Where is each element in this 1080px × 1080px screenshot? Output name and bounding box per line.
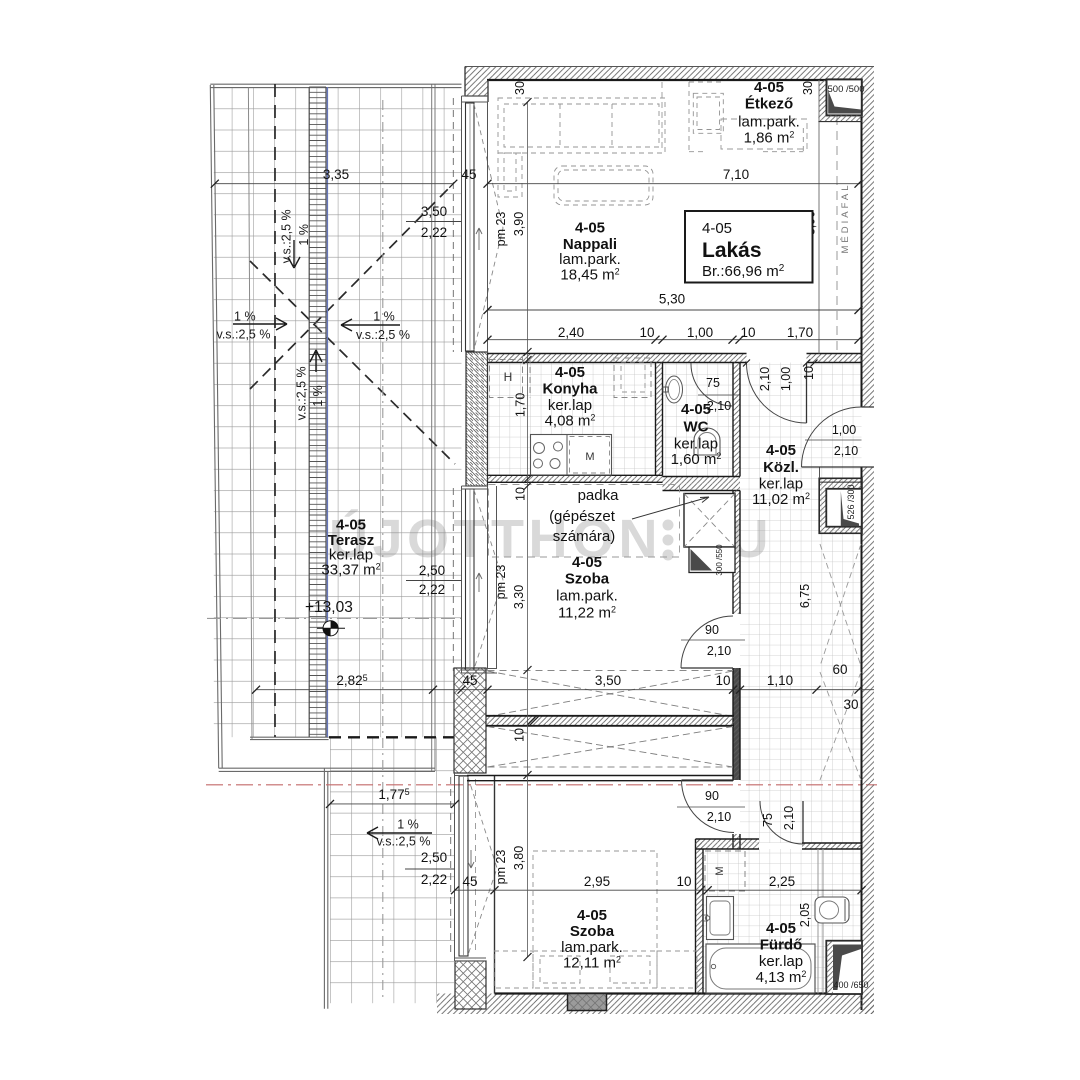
svg-text:1,70: 1,70: [787, 325, 813, 340]
svg-text:+13,03: +13,03: [305, 599, 353, 616]
svg-text:ker.lap: ker.lap: [674, 436, 718, 453]
svg-text:90: 90: [705, 623, 719, 637]
svg-text:4-05: 4-05: [766, 920, 796, 937]
svg-text:2,50: 2,50: [419, 563, 445, 578]
svg-text:(gépészet: (gépészet: [549, 508, 616, 525]
svg-text:2,22: 2,22: [421, 225, 447, 240]
svg-text:4-05: 4-05: [681, 401, 711, 418]
svg-text:Szoba: Szoba: [570, 923, 615, 940]
svg-text:90: 90: [705, 789, 719, 803]
svg-text:ker.lap: ker.lap: [548, 397, 592, 414]
svg-text:2,05: 2,05: [798, 903, 812, 927]
svg-text:v.s.:2,5 %: v.s.:2,5 %: [280, 209, 294, 263]
svg-text:10: 10: [676, 874, 691, 889]
svg-text:4-05: 4-05: [702, 220, 732, 237]
svg-text:1 %: 1 %: [311, 385, 325, 407]
svg-text:Szoba: Szoba: [565, 571, 610, 588]
svg-text:pm 23: pm 23: [494, 850, 508, 885]
svg-text:11,22 m2: 11,22 m2: [558, 605, 616, 622]
svg-text:2,40: 2,40: [558, 325, 584, 340]
svg-text:2,10: 2,10: [834, 444, 858, 458]
svg-text:4-05: 4-05: [555, 364, 585, 381]
svg-text:1 %: 1 %: [297, 224, 311, 246]
svg-text:M: M: [585, 451, 594, 463]
svg-text:2,10: 2,10: [707, 810, 731, 824]
svg-text:1,00: 1,00: [779, 367, 793, 391]
svg-text:10: 10: [639, 325, 654, 340]
svg-text:60: 60: [832, 662, 847, 677]
svg-text:4-05: 4-05: [754, 79, 784, 96]
svg-text:Konyha: Konyha: [542, 381, 598, 398]
svg-text:lam.park.: lam.park.: [738, 114, 800, 131]
svg-text:1,60 m2: 1,60 m2: [671, 451, 722, 468]
svg-text:30: 30: [801, 81, 815, 95]
svg-text:padka: padka: [578, 487, 620, 504]
svg-text:45: 45: [462, 874, 477, 889]
svg-text:7,10: 7,10: [723, 167, 749, 182]
svg-text:v.s.:2,5 %: v.s.:2,5 %: [377, 835, 431, 849]
svg-text:pm 23: pm 23: [494, 212, 508, 247]
svg-text:1,86 m2: 1,86 m2: [744, 130, 795, 147]
svg-text:4-05: 4-05: [577, 907, 607, 924]
svg-text:1 %: 1 %: [373, 310, 395, 324]
svg-text:Közl.: Közl.: [763, 459, 799, 476]
svg-text:30: 30: [513, 81, 527, 95]
svg-text:2,95: 2,95: [584, 874, 610, 889]
svg-text:Étkező: Étkező: [745, 96, 793, 113]
svg-text:1,10: 1,10: [767, 673, 793, 688]
svg-text:3,30: 3,30: [512, 585, 526, 609]
svg-text:12,11 m2: 12,11 m2: [563, 955, 621, 972]
svg-text:pm 23: pm 23: [494, 565, 508, 600]
svg-text:10: 10: [802, 366, 816, 380]
svg-text:45: 45: [461, 167, 476, 182]
svg-text:75: 75: [761, 813, 775, 827]
svg-text:Fürdő: Fürdő: [760, 937, 803, 954]
svg-text:ker.lap: ker.lap: [759, 476, 803, 493]
svg-text:3,80: 3,80: [512, 846, 526, 870]
svg-text:2,22: 2,22: [419, 582, 445, 597]
svg-text:1,00: 1,00: [687, 325, 713, 340]
svg-text:3,90: 3,90: [512, 212, 526, 236]
svg-text:4-05: 4-05: [575, 220, 605, 237]
svg-text:1,00: 1,00: [832, 423, 856, 437]
svg-text:v.s.:2,5 %: v.s.:2,5 %: [356, 328, 410, 342]
svg-text:1,70: 1,70: [514, 393, 528, 417]
svg-text:4-05: 4-05: [572, 554, 602, 571]
svg-text:6,75: 6,75: [798, 584, 812, 608]
svg-text:Lakás: Lakás: [702, 239, 762, 262]
svg-text:5,30: 5,30: [659, 292, 685, 307]
svg-text:MÉDIAFAL: MÉDIAFAL: [840, 183, 851, 254]
svg-text:33,37 m2: 33,37 m2: [321, 562, 380, 579]
svg-text:3,50: 3,50: [595, 673, 621, 688]
svg-text:2,10: 2,10: [782, 806, 796, 830]
svg-text:v.s.:2,5 %: v.s.:2,5 %: [295, 366, 309, 420]
svg-text:H: H: [504, 370, 513, 384]
svg-text:M: M: [714, 866, 726, 875]
svg-text:526 /300: 526 /300: [846, 484, 856, 519]
svg-text:2,25: 2,25: [769, 874, 795, 889]
svg-text:75: 75: [706, 376, 720, 390]
svg-text:4,13 m2: 4,13 m2: [756, 969, 807, 986]
svg-text:3,50: 3,50: [421, 204, 447, 219]
svg-text:4,08 m2: 4,08 m2: [545, 413, 596, 430]
svg-text:30: 30: [843, 697, 858, 712]
svg-text:400 /650: 400 /650: [833, 980, 868, 990]
svg-text:lam.park.: lam.park.: [556, 588, 618, 605]
svg-text:2,10: 2,10: [707, 644, 731, 658]
svg-text:10: 10: [514, 487, 528, 501]
svg-text:Br.:66,96 m2: Br.:66,96 m2: [702, 263, 785, 280]
svg-text:2,22: 2,22: [421, 872, 447, 887]
svg-text:2,50: 2,50: [421, 850, 447, 865]
svg-text:10: 10: [513, 728, 527, 742]
svg-text:18,45 m2: 18,45 m2: [560, 267, 619, 284]
svg-text:lam.park.: lam.park.: [559, 251, 621, 268]
svg-text:500 /500: 500 /500: [828, 84, 865, 95]
svg-text:10: 10: [715, 673, 730, 688]
svg-text:10: 10: [740, 325, 755, 340]
svg-text:lam.park.: lam.park.: [561, 939, 623, 956]
svg-text:45: 45: [462, 673, 477, 688]
svg-text:számára): számára): [553, 528, 616, 545]
svg-text:v.s.:2,5 %: v.s.:2,5 %: [217, 328, 271, 342]
svg-text:300 /550: 300 /550: [715, 544, 724, 576]
svg-text:3,35: 3,35: [323, 167, 349, 182]
svg-text:2,10: 2,10: [758, 367, 772, 391]
svg-text:WC: WC: [684, 419, 709, 436]
svg-text:11,02 m2: 11,02 m2: [752, 491, 810, 508]
svg-text:ker.lap: ker.lap: [759, 953, 803, 970]
svg-text:1 %: 1 %: [397, 818, 419, 832]
svg-text:4-05: 4-05: [766, 442, 796, 459]
svg-text:4-05: 4-05: [336, 517, 366, 534]
svg-text:1 %: 1 %: [234, 310, 256, 324]
